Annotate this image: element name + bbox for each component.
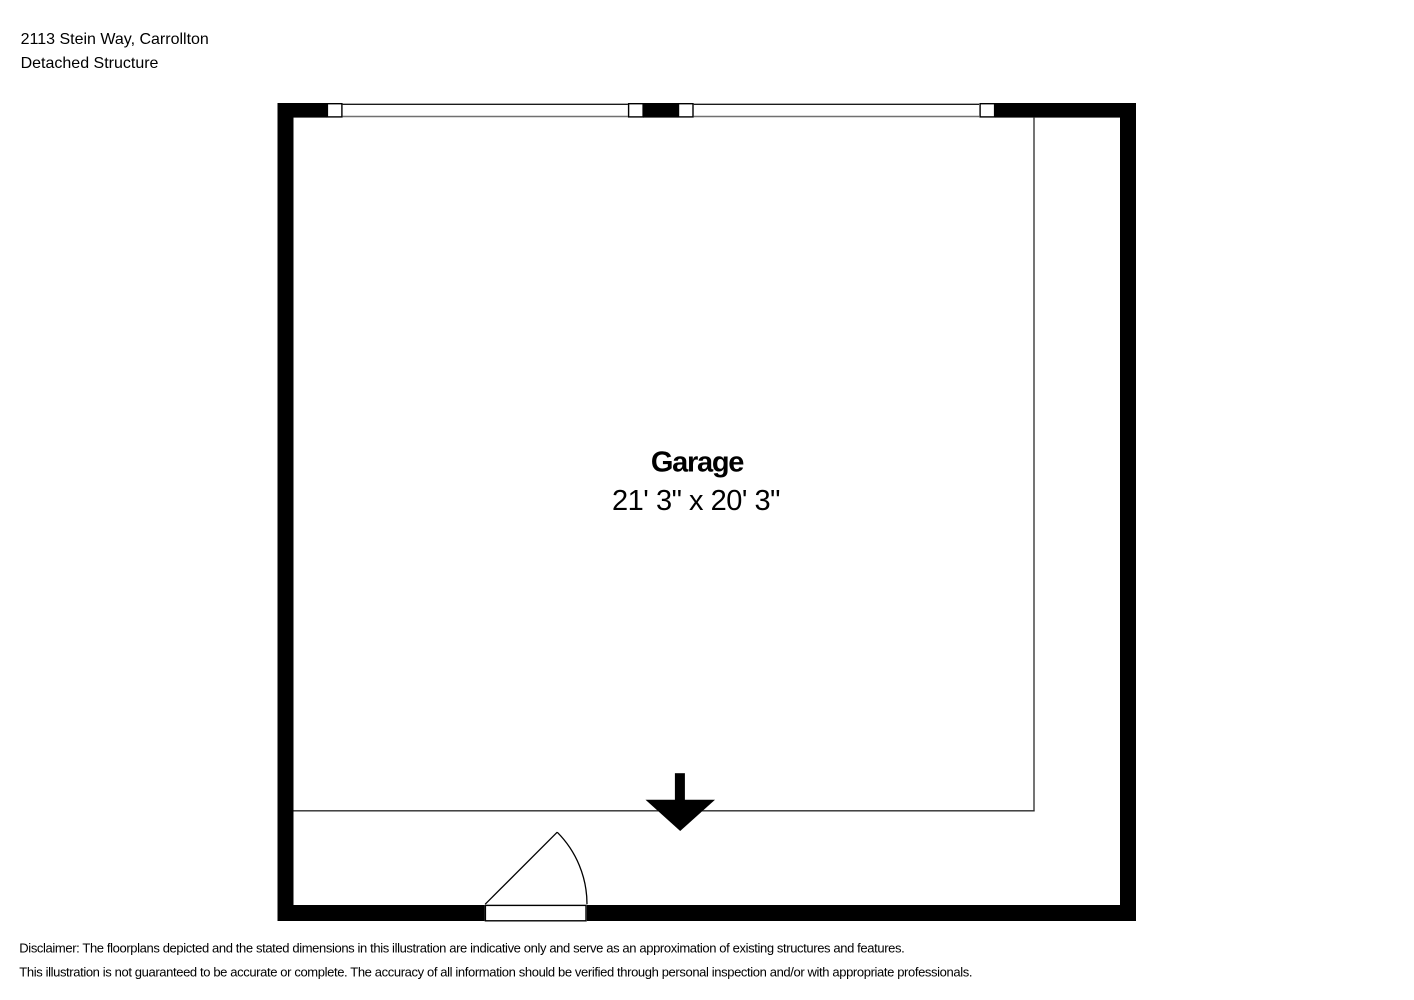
svg-text:Detached Structure: Detached Structure (21, 55, 159, 72)
svg-text:2113 Stein Way, Carrollton: 2113 Stein Way, Carrollton (21, 31, 209, 48)
svg-text:This illustration is not guara: This illustration is not guaranteed to b… (19, 965, 972, 980)
svg-text:21' 3" x 20' 3": 21' 3" x 20' 3" (612, 485, 780, 517)
svg-text:Disclaimer: The floorplans dep: Disclaimer: The floorplans depicted and … (19, 940, 904, 955)
svg-text:Garage: Garage (651, 446, 744, 478)
